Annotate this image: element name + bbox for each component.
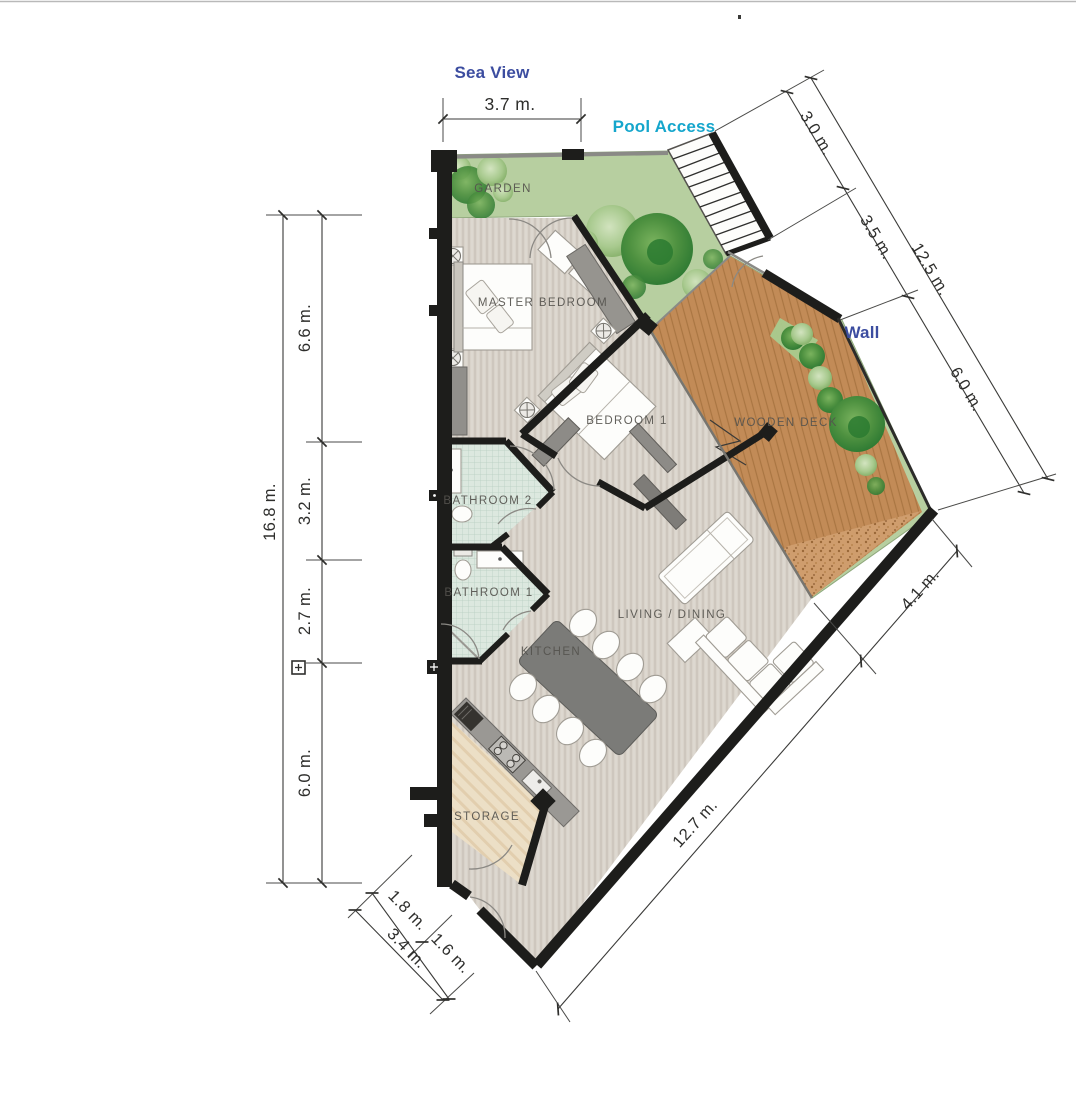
sea-view-label: Sea View: [454, 63, 530, 82]
corner-post: [431, 150, 457, 172]
room-label-storage: STORAGE: [454, 811, 520, 823]
wall-post: [562, 149, 584, 160]
dim-bottom-left-2: 1.6 m.: [427, 930, 473, 977]
dim-left-seg-1: 6.6 m.: [296, 304, 314, 352]
stray-mark: [738, 15, 741, 19]
dim-right-seg-3: 6.0 m.: [946, 364, 986, 415]
dim-right-seg-1: 3.0 m.: [796, 108, 836, 159]
dim-top-width: 3.7 m.: [484, 94, 535, 114]
dim-left-seg-3: 2.7 m.: [296, 587, 314, 635]
floor-plan-drawing: 3.7 m. 6.6 m. 3.2 m. 2.7 m. 6.0 m. 16.8 …: [0, 0, 1076, 1106]
toilet: [455, 560, 471, 580]
room-label-bathroom-1: BATHROOM 1: [444, 587, 533, 599]
dim-right-total: 12.5 m.: [908, 240, 953, 299]
pool-access-label: Pool Access: [613, 117, 716, 136]
floor-plan-page: 3.7 m. 6.6 m. 3.2 m. 2.7 m. 6.0 m. 16.8 …: [0, 0, 1076, 1106]
dim-bottom-left-total: 3.4 m.: [383, 925, 429, 972]
dim-right-seg-2: 3.5 m.: [856, 212, 896, 263]
wall-notch: [424, 814, 452, 827]
room-label-wooden-deck: WOODEN DECK: [734, 417, 838, 429]
dim-left-total: 16.8 m.: [261, 483, 279, 541]
room-label-living-dining: LIVING / DINING: [618, 609, 727, 621]
room-label-bedroom-1: BEDROOM 1: [586, 415, 668, 427]
wall-notch: [410, 787, 452, 800]
left-wall: [437, 155, 452, 887]
room-label-master-bedroom: MASTER BEDROOM: [478, 297, 608, 309]
room-label-garden: GARDEN: [474, 183, 532, 195]
dim-bottom-left-1: 1.8 m.: [384, 887, 430, 934]
wall-socket: [429, 228, 440, 239]
room-label-kitchen: KITCHEN: [521, 646, 581, 658]
toilet: [452, 506, 472, 522]
wall-label: Wall: [844, 323, 879, 342]
dim-left-seg-4: 6.0 m.: [296, 749, 314, 797]
dim-deck-edge: 4.1 m.: [897, 566, 943, 614]
headboard: [454, 262, 463, 352]
meter-symbols: [292, 660, 441, 674]
dim-left-seg-2: 3.2 m.: [296, 477, 314, 525]
wall-socket: [429, 305, 440, 316]
room-label-bathroom-2: BATHROOM 2: [443, 495, 532, 507]
